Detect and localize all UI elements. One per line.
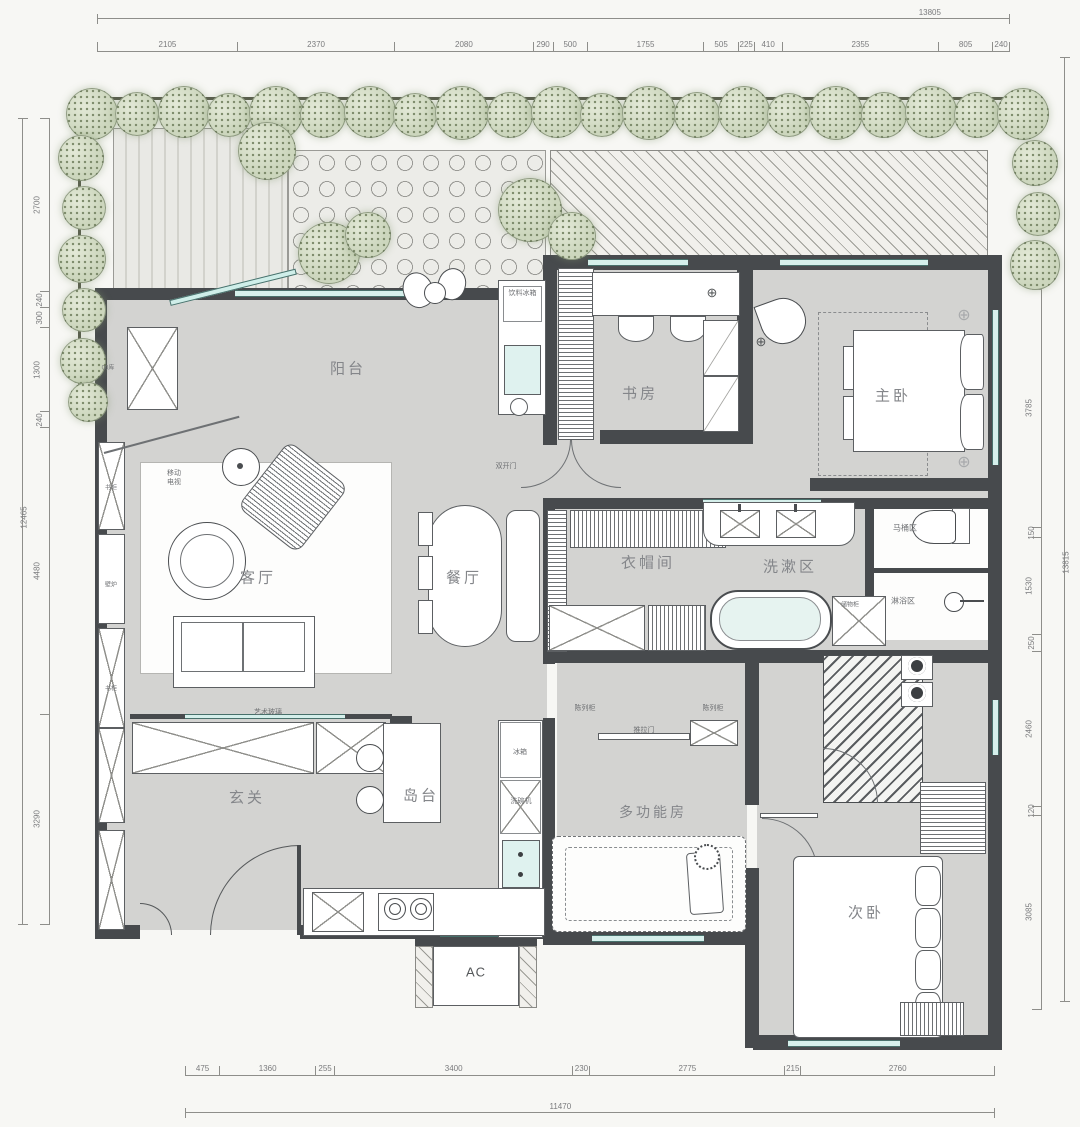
tree (158, 86, 210, 138)
burner (410, 898, 432, 920)
bookcase-label: 书柜 (105, 483, 117, 492)
wall (600, 430, 753, 444)
pillow (915, 908, 941, 948)
dim-segment: 2370 (237, 42, 394, 52)
side-table-dot (237, 463, 243, 469)
dishwasher (500, 780, 541, 834)
room-label-balcony: 阳台 (330, 358, 366, 379)
dim-segment: 2355 (782, 42, 938, 52)
storage-label: 00库 (102, 363, 115, 372)
window (788, 1040, 900, 1047)
dim-segment: 4480 (40, 427, 50, 713)
cabinet (703, 320, 739, 376)
room-label-second: 次卧 (848, 902, 884, 923)
display-cabinet-label: 陈列柜 (703, 703, 724, 713)
dining-chair (418, 600, 433, 634)
room-label-shower: 淋浴区 (891, 596, 915, 607)
dishwasher-label: 洗碗机 (511, 796, 532, 806)
room-label-dining: 餐厅 (446, 567, 482, 588)
dining-chair (418, 512, 433, 546)
shower-head (944, 592, 964, 612)
tree (767, 93, 811, 137)
pillow (960, 334, 984, 390)
bookshelf (558, 268, 594, 440)
dim-segment: 500 (553, 42, 587, 52)
dim-segment: 225 (738, 42, 754, 52)
dim-segment: 230 (572, 1066, 589, 1076)
room-label-island: 岛台 (403, 785, 439, 806)
room-label-ac: AC (466, 965, 486, 980)
tree (1010, 240, 1060, 290)
window (992, 700, 999, 755)
dim-segment: 2105 (97, 42, 237, 52)
dim-segment: 120 (1032, 806, 1042, 815)
fixture-icon: ⊕ (756, 334, 767, 350)
dim-left-chain: 2700240300130024044803290 (40, 118, 50, 925)
tree (344, 86, 396, 138)
dim-segment: 2080 (394, 42, 532, 52)
tree (674, 92, 720, 138)
dim-segment: 215 (784, 1066, 800, 1076)
dim-segment: 240 (40, 411, 50, 427)
balcony-sink (504, 345, 541, 395)
tree (207, 93, 251, 137)
display-cabinet (690, 720, 738, 746)
dining-bench (506, 510, 540, 642)
tree (954, 92, 1000, 138)
room-label-study: 书房 (622, 383, 658, 404)
wardrobe (900, 1002, 964, 1036)
fridge-label: 冰箱 (513, 747, 527, 757)
dim-segment: 1300 (40, 327, 50, 411)
fireplace-label: 壁炉 (105, 580, 117, 589)
dining-chair (418, 556, 433, 590)
dim-segment: 2760 (800, 1066, 995, 1076)
window (235, 290, 405, 297)
dim-segment: 410 (754, 42, 782, 52)
sofa-cushion (181, 622, 243, 672)
tree (1012, 140, 1058, 186)
entry-cabinet (132, 722, 314, 774)
tree (300, 92, 346, 138)
window (592, 935, 704, 942)
room-label-wash: 洗漱区 (763, 556, 817, 577)
dim-segment: 250 (1032, 634, 1042, 651)
dim-segment: 3085 (1032, 815, 1042, 1010)
crosshair-icon: ⊕ (957, 452, 970, 472)
tree (487, 92, 533, 138)
door-leaf (760, 813, 818, 818)
tree (548, 212, 596, 260)
dim-segment: 3290 (40, 714, 50, 925)
tree (905, 86, 957, 138)
tree (115, 92, 159, 136)
ac-hatch (415, 946, 433, 1008)
toilet-bowl (912, 510, 956, 544)
wall (415, 938, 537, 946)
pillow (960, 394, 984, 450)
storage-boxes (549, 605, 645, 651)
tree (238, 122, 296, 180)
shower-arm (960, 600, 984, 602)
cabinet (703, 376, 739, 432)
tree (66, 88, 118, 140)
tree (809, 86, 863, 140)
dim-segment: 3400 (334, 1066, 572, 1076)
room-label-living: 客厅 (240, 567, 276, 588)
balcony-storage-cabinet (127, 327, 178, 410)
dim-segment: 2460 (1032, 651, 1042, 806)
kitchen-island (383, 723, 441, 823)
counter-storage (312, 892, 364, 932)
tree (718, 86, 770, 138)
sink-drain (518, 852, 523, 857)
dim-right-total: 13815 (1064, 57, 1065, 1002)
shoe-cabinet (98, 728, 125, 823)
hanging-rack (648, 605, 706, 651)
tree (393, 93, 437, 137)
tree (58, 235, 106, 283)
coffee-table-inner (180, 534, 234, 588)
pillow (915, 950, 941, 990)
dim-bottom-chain: 4751360255340023027752152760 (185, 1066, 995, 1076)
window (992, 310, 999, 465)
dim-segment: 1755 (587, 42, 704, 52)
tree (60, 338, 106, 384)
dim-bottom-total: 11470 (185, 1112, 995, 1113)
ac-hatch (519, 946, 537, 1008)
bookcase-label: 书柜 (105, 684, 117, 693)
dim-segment: 2700 (40, 118, 50, 291)
dim-segment: 240 (992, 42, 1010, 52)
dim-right-chain: 2403003785150153025024601203085 (1032, 253, 1042, 1010)
dim-top-total: 13805 (97, 18, 1010, 19)
tree (435, 86, 489, 140)
tree (861, 92, 907, 138)
window (780, 259, 928, 266)
wall (745, 650, 759, 805)
desk (592, 272, 740, 316)
mobile-tv-label: 移动电视 (166, 469, 182, 487)
tree (62, 288, 106, 332)
sink (776, 510, 816, 538)
room-label-entry: 玄关 (229, 787, 265, 808)
sink (720, 510, 760, 538)
art-glass-label: 艺术玻璃 (254, 707, 282, 717)
wardrobe (920, 782, 986, 854)
room-label-toilet: 马桶区 (893, 523, 917, 534)
bathtub-inner (719, 597, 821, 641)
sink-drain (518, 872, 523, 877)
tree (580, 93, 624, 137)
wall (745, 868, 759, 1048)
crosshair-icon: ⊕ (957, 305, 970, 325)
sofa-cushion (243, 622, 305, 672)
display-cabinet-label: 陈列柜 (575, 703, 596, 713)
entry-door-leaf (297, 845, 301, 935)
dim-segment: 2775 (589, 1066, 784, 1076)
burner (384, 898, 406, 920)
wall (810, 478, 992, 491)
balcony-drain (510, 398, 528, 416)
fixture-icon: ⊕ (707, 285, 718, 301)
tree (345, 212, 391, 258)
shoe-cabinet (98, 830, 125, 930)
dim-segment: 505 (703, 42, 737, 52)
cushion-spiral (694, 844, 720, 870)
dim-segment: 240 (40, 291, 50, 307)
stool (356, 786, 384, 814)
paved-terrace (550, 150, 988, 260)
pillow (915, 866, 941, 906)
tree (622, 86, 676, 140)
floor-plan: 13805 2105237020802905001755505225410235… (0, 0, 1080, 1127)
sliding-door-label: 推拉门 (634, 725, 655, 735)
washer-door-icon (908, 657, 926, 675)
stool (356, 744, 384, 772)
dryer-door-icon (908, 684, 926, 702)
tree (997, 88, 1049, 140)
dim-segment: 805 (938, 42, 992, 52)
dim-segment: 475 (185, 1066, 219, 1076)
room-label-master: 主卧 (875, 385, 911, 406)
tree (531, 86, 583, 138)
tree (58, 135, 104, 181)
desk-chair (618, 316, 654, 342)
side-table (424, 282, 446, 304)
dim-segment: 290 (533, 42, 553, 52)
faucet (738, 504, 741, 512)
room-label-multi: 多功能房 (619, 802, 687, 822)
dim-segment: 255 (315, 1066, 334, 1076)
drink-fridge: 饮料冰箱 (503, 286, 542, 322)
tree (68, 382, 108, 422)
dim-segment: 150 (1032, 527, 1042, 537)
room-label-closet: 衣帽间 (621, 552, 675, 573)
wall (870, 568, 988, 573)
dim-label: 11470 (550, 1102, 572, 1111)
dim-label: 13815 (1062, 551, 1071, 573)
dim-left-total: 12465 (22, 118, 23, 925)
tree (62, 186, 106, 230)
dim-label: 12465 (20, 507, 29, 529)
drink-fridge-label: 饮料冰箱 (504, 290, 541, 299)
window (588, 259, 688, 266)
dim-segment: 300 (40, 307, 50, 327)
dim-label: 13805 (919, 8, 941, 17)
tree (1016, 192, 1060, 236)
double-door-label: 双开门 (496, 461, 517, 471)
bookcase (98, 628, 125, 728)
desk-chair (670, 316, 706, 342)
dim-top-chain: 2105237020802905001755505225410235580524… (97, 42, 1010, 52)
bath-storage-label: 储物柜 (841, 600, 859, 609)
dim-segment: 1360 (219, 1066, 315, 1076)
faucet (794, 504, 797, 512)
dim-segment: 3785 (1032, 289, 1042, 527)
kitchen-sink (502, 840, 540, 888)
dim-segment: 1530 (1032, 537, 1042, 634)
